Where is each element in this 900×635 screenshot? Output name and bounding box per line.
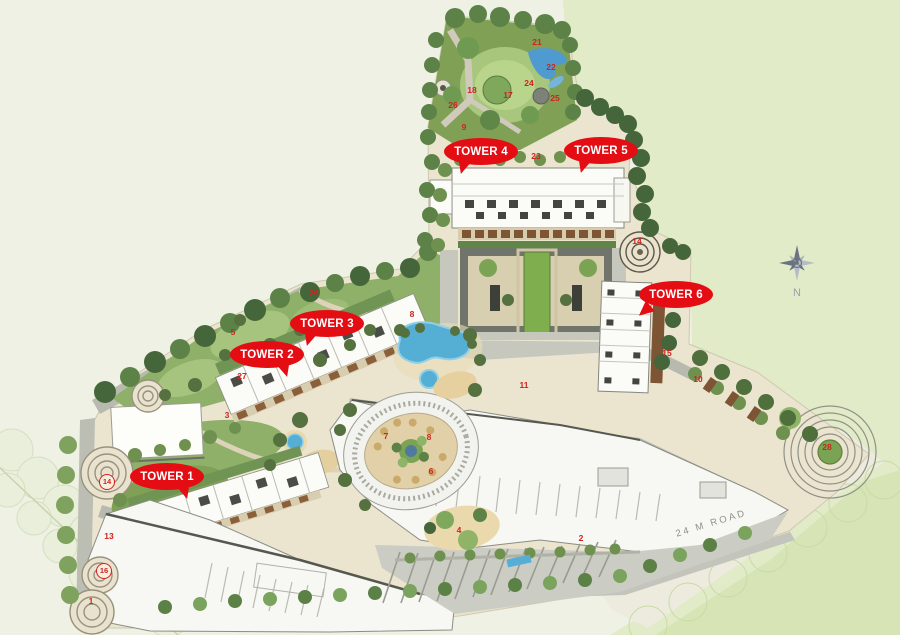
plan-marker-3: 3 — [225, 411, 230, 420]
plan-marker-14b: 14 — [99, 474, 115, 490]
plan-marker-5: 5 — [231, 328, 236, 337]
plan-marker-17: 17 — [503, 91, 512, 100]
tower-2-badge: TOWER 2 — [230, 341, 304, 368]
plan-marker-15: 15 — [662, 349, 671, 358]
top-park — [428, 16, 577, 150]
plan-marker-22: 22 — [546, 63, 555, 72]
plan-marker-4: 4 — [457, 526, 462, 535]
plan-marker-26b: 26 — [309, 289, 318, 298]
tower-4-label: TOWER 4 — [454, 146, 508, 158]
plan-marker-6: 6 — [429, 467, 434, 476]
tower-4-badge: TOWER 4 — [444, 138, 518, 165]
tower-5-badge: TOWER 5 — [564, 137, 638, 164]
courtyard-lawn — [524, 252, 550, 336]
plan-marker-2: 2 — [579, 534, 584, 543]
tower-1-label: TOWER 1 — [140, 471, 194, 483]
tower-2-label: TOWER 2 — [240, 349, 294, 361]
plan-marker-27: 27 — [237, 372, 246, 381]
tower-6-badge: TOWER 6 — [639, 281, 713, 308]
tower-1-badge: TOWER 1 — [130, 463, 204, 490]
tower-5-label: TOWER 5 — [574, 145, 628, 157]
plan-marker-10: 10 — [693, 375, 702, 384]
plan-marker-16: 16 — [96, 563, 112, 579]
plan-marker-1: 1 — [89, 597, 94, 606]
plan-marker-7: 7 — [384, 432, 389, 441]
plan-marker-14a: 14 — [632, 237, 641, 246]
compass-north-label: N — [793, 287, 801, 299]
site-plan-image: N 24 M ROAD TOWER 1 TOWER 2 TOWER 3 TOWE… — [0, 0, 900, 635]
plan-marker-28: 28 — [822, 443, 831, 452]
plan-marker-26a: 26 — [448, 101, 457, 110]
park-structure — [533, 88, 549, 104]
plan-marker-13: 13 — [104, 532, 113, 541]
plan-marker-9: 9 — [462, 123, 467, 132]
plan-marker-11: 11 — [520, 381, 529, 390]
plan-marker-24: 24 — [524, 79, 533, 88]
plan-marker-18: 18 — [467, 86, 476, 95]
tower-3-badge: TOWER 3 — [290, 310, 364, 337]
site-plan-artwork: N 24 M ROAD — [0, 0, 900, 635]
plan-marker-8a: 8 — [410, 310, 415, 319]
plan-marker-21: 21 — [532, 38, 541, 47]
tower-3-label: TOWER 3 — [300, 318, 354, 330]
plan-marker-25: 25 — [550, 94, 559, 103]
tower-6-label: TOWER 6 — [649, 289, 703, 301]
plan-marker-23: 23 — [531, 152, 540, 161]
plan-marker-8b: 8 — [427, 433, 432, 442]
